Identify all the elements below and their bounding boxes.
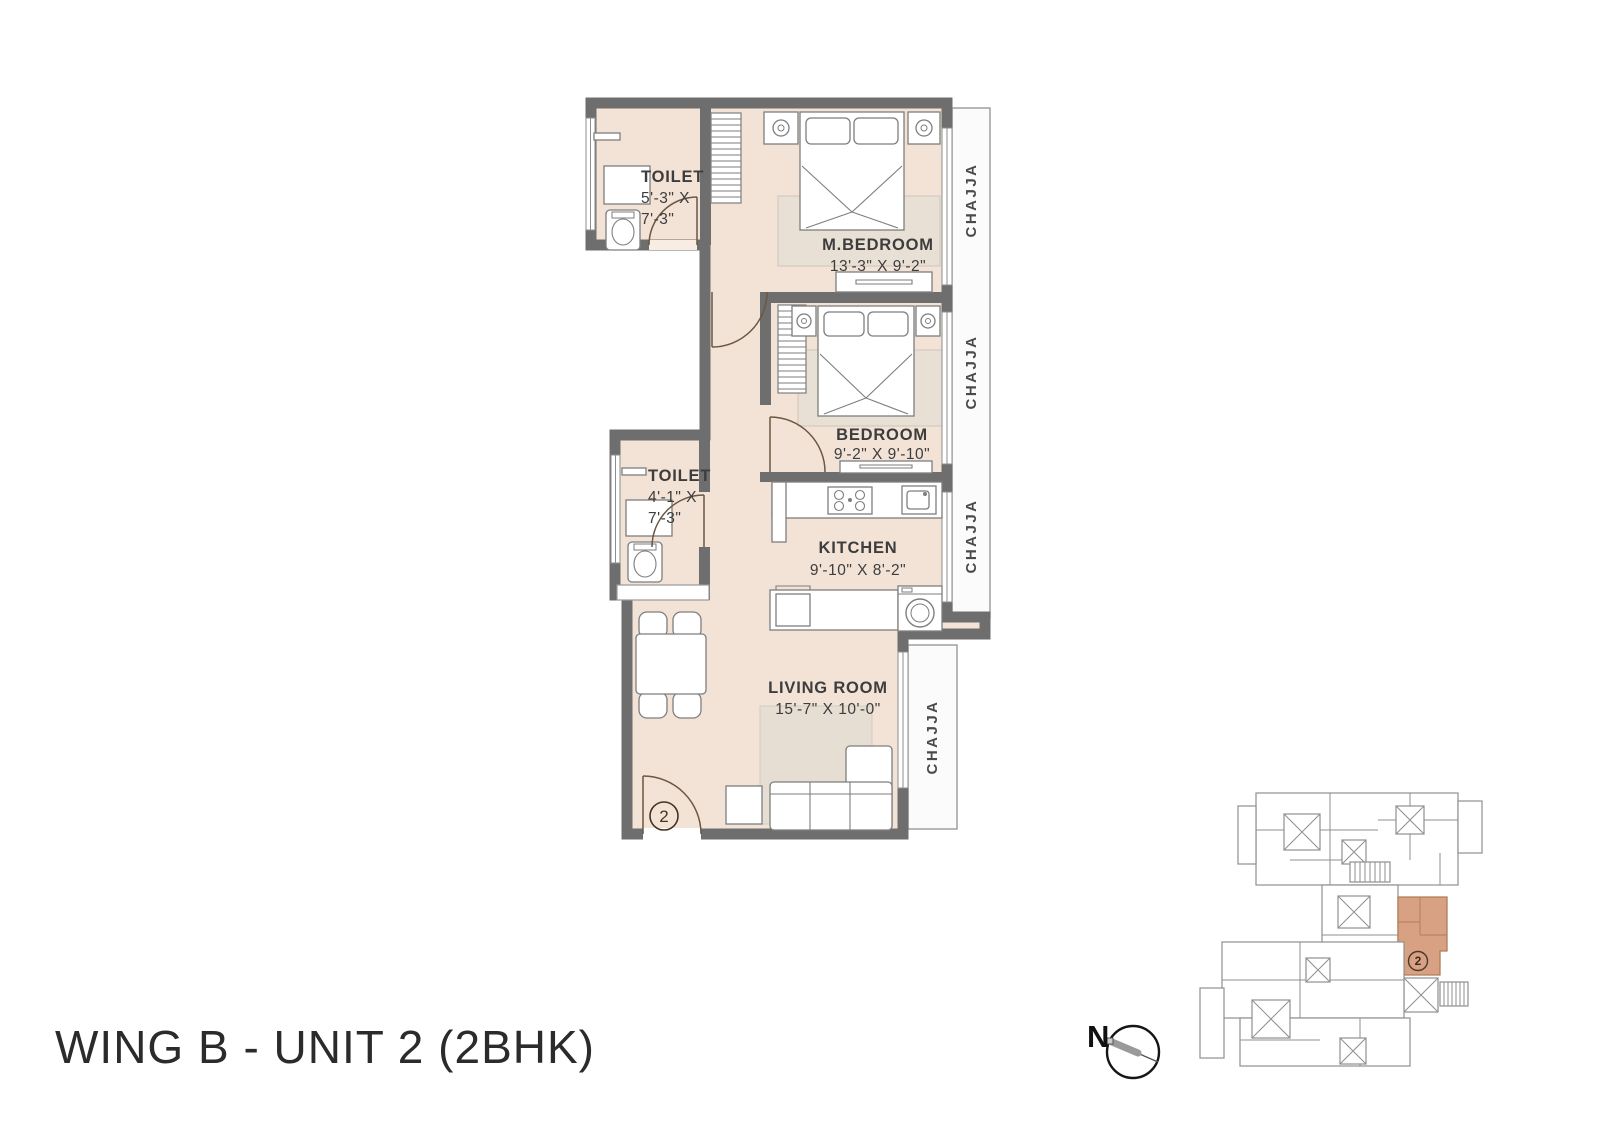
- lamp-icon: [797, 314, 811, 328]
- key-plan-shaft: [1284, 814, 1320, 850]
- key-plan-stairs: [1350, 862, 1390, 882]
- kitchen-sink: [902, 486, 936, 514]
- bedroom-dims: 9'-2" X 9'-10": [834, 446, 930, 463]
- double-bed: [818, 306, 914, 416]
- washing-machine: [898, 586, 942, 631]
- key-plan-shaft: [1252, 1000, 1290, 1038]
- pillow: [806, 118, 850, 144]
- living-room-dims: 15'-7" X 10'-0": [775, 701, 880, 718]
- chajja-label-2: CHAJJA: [963, 334, 980, 409]
- dining-chair: [639, 692, 667, 718]
- north-label: N: [1087, 1019, 1109, 1054]
- toilet-mid-dims-2: 7'-3": [648, 510, 681, 527]
- wall-bedroom-left-upper: [760, 303, 771, 405]
- key-plan: 2: [1200, 793, 1482, 1066]
- dresser: [836, 272, 932, 292]
- dining-chair: [673, 692, 701, 718]
- chajja-label-1: CHAJJA: [963, 162, 980, 237]
- master-bedroom-dims: 13'-3" X 9'-2": [830, 258, 926, 275]
- page-title: WING B - UNIT 2 (2BHK): [55, 1021, 595, 1073]
- kitchen-hob: [828, 487, 872, 514]
- kitchen-dims: 9'-10" X 8'-2": [810, 562, 906, 579]
- chajja-label-3: CHAJJA: [963, 498, 980, 573]
- key-plan-shaft: [1396, 806, 1424, 834]
- living-room-label: LIVING ROOM: [768, 679, 888, 697]
- toilet-top-dims-2: 7'-3": [641, 211, 674, 228]
- window-toilet-mid: [611, 455, 620, 563]
- toilet-mid-ledge: [617, 585, 709, 600]
- wc-icon: [628, 542, 662, 582]
- north-compass: N: [1087, 1019, 1159, 1078]
- floorplan-canvas: CHAJJA CHAJJA CHAJJA CHAJJA: [0, 0, 1600, 1143]
- key-plan-stairs: [1440, 982, 1468, 1006]
- kitchen-platform: [770, 586, 898, 630]
- key-plan-shaft: [1404, 978, 1438, 1012]
- key-plan-lower-wing: [1200, 942, 1410, 1066]
- key-plan-unit-number: 2: [1415, 954, 1422, 968]
- key-plan-upper-wing: [1238, 793, 1482, 885]
- bedroom-label: BEDROOM: [836, 426, 928, 444]
- lamp-icon: [916, 120, 932, 136]
- pillow: [854, 118, 898, 144]
- key-plan-shaft: [1338, 896, 1370, 928]
- kitchen-label: KITCHEN: [819, 539, 898, 557]
- pillow: [868, 312, 908, 336]
- toilet-top-label: TOILET: [641, 168, 704, 186]
- side-table: [726, 786, 762, 824]
- lamp-icon: [773, 120, 789, 136]
- pillow: [824, 312, 864, 336]
- toilet-mid-dims-1: 4'-1" X: [648, 489, 697, 506]
- master-bedroom-label: M.BEDROOM: [822, 236, 934, 254]
- wc-icon: [606, 210, 640, 250]
- key-plan-highlighted-unit: 2: [1398, 897, 1447, 975]
- window-bedroom: [942, 312, 952, 464]
- toilet-mid-label: TOILET: [648, 467, 711, 485]
- window-living-room: [898, 652, 908, 788]
- wardrobe-shaft-top: [711, 113, 741, 203]
- window-kitchen: [942, 492, 952, 602]
- key-plan-shaft: [1342, 840, 1366, 864]
- window-master-bedroom: [942, 128, 952, 285]
- dining-table: [636, 634, 706, 694]
- key-plan-shaft: [1340, 1038, 1366, 1064]
- unit-number-text: 2: [659, 807, 668, 826]
- toilet-top-dims-1: 5'-3" X: [641, 190, 690, 207]
- towel-rail: [622, 468, 646, 475]
- wall-mbedroom-bedroom-divider: [760, 292, 952, 303]
- chajja-label-4: CHAJJA: [924, 699, 941, 774]
- double-bed: [800, 112, 904, 230]
- towel-rail: [594, 133, 620, 140]
- key-plan-shaft: [1306, 958, 1330, 982]
- lamp-icon: [921, 314, 935, 328]
